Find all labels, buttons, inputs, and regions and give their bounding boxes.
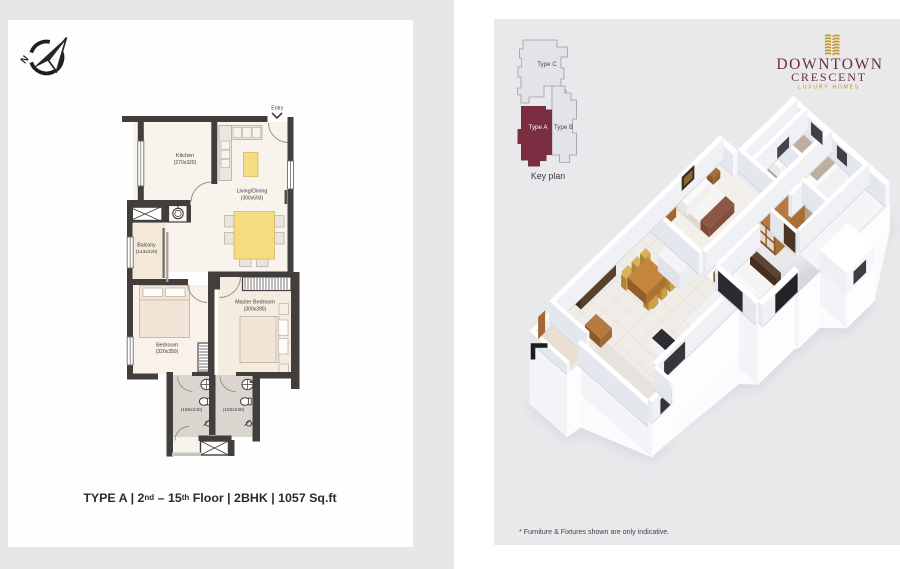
svg-text:LUXURY HOMES: LUXURY HOMES <box>798 85 860 91</box>
svg-text:Entry: Entry <box>271 106 284 112</box>
svg-text:Type C: Type C <box>537 61 557 68</box>
svg-text:Master Bedroom: Master Bedroom <box>235 300 275 306</box>
svg-text:* Furniture & Fixtures shown a: * Furniture & Fixtures shown are only in… <box>519 528 669 536</box>
svg-text:CRESCENT: CRESCENT <box>791 70 867 84</box>
svg-text:Bedroom: Bedroom <box>156 343 178 349</box>
svg-text:(150x240): (150x240) <box>181 407 203 413</box>
svg-text:(300x593): (300x593) <box>241 196 264 202</box>
svg-text:(270x320): (270x320) <box>174 160 197 166</box>
svg-text:Key plan: Key plan <box>531 171 565 181</box>
svg-text:Balcony: Balcony <box>137 243 156 249</box>
svg-text:Living/Dining: Living/Dining <box>237 189 268 195</box>
svg-text:(320x350): (320x350) <box>156 349 179 355</box>
svg-text:Type B: Type B <box>554 124 573 131</box>
svg-text:(150x240): (150x240) <box>223 407 245 413</box>
svg-text:(143x220): (143x220) <box>136 249 158 255</box>
svg-text:(300x390): (300x390) <box>244 307 267 313</box>
svg-text:TYPE A | 2nd – 15th Floor | 2B: TYPE A | 2nd – 15th Floor | 2BHK | 1057 … <box>83 491 336 505</box>
svg-text:Type A: Type A <box>529 124 549 131</box>
svg-text:N: N <box>19 54 32 66</box>
svg-text:Kitchen: Kitchen <box>176 153 194 159</box>
